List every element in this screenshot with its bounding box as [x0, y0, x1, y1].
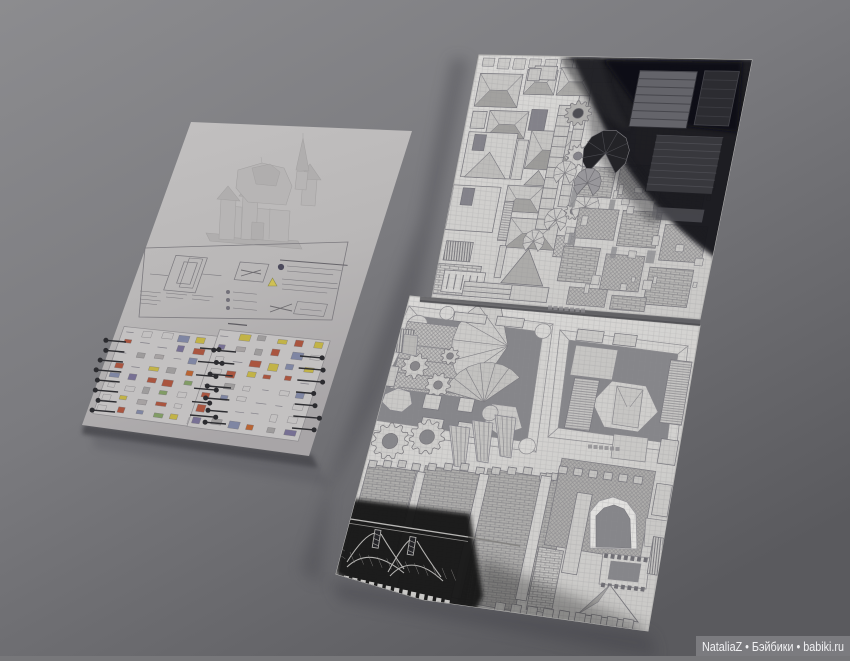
- svg-text:NataliaZ • Бэйбики • babiki.ru: NataliaZ • Бэйбики • babiki.ru: [702, 640, 844, 654]
